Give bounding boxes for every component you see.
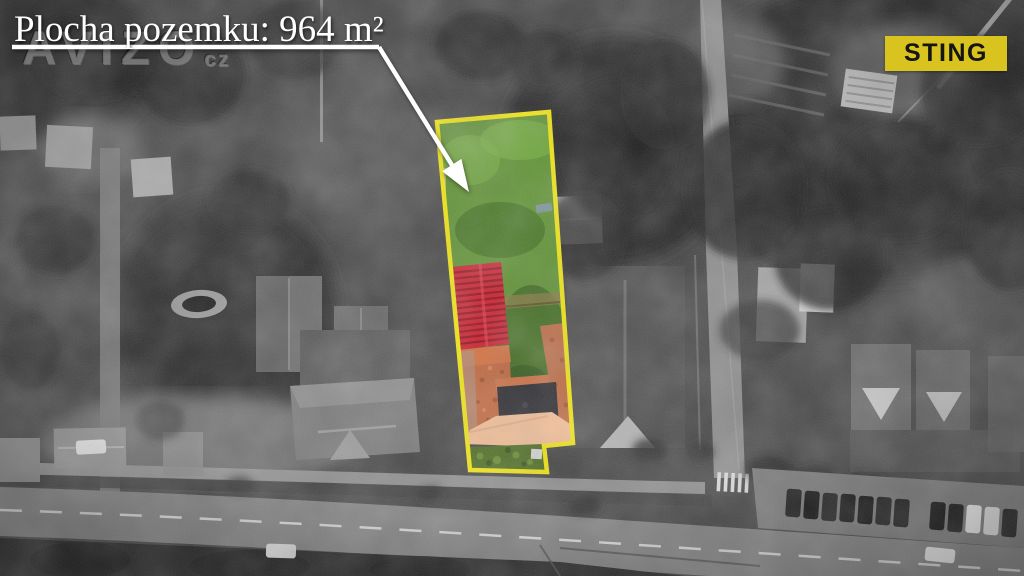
brand-badge-sting: STING: [885, 36, 1007, 71]
area-annotation: [12, 47, 455, 170]
annotation-svg: [0, 0, 1024, 576]
pointer-line: [379, 47, 455, 170]
area-label: Plocha pozemku: 964 m²: [14, 8, 384, 51]
aerial-photo: AVIZOcz Plocha pozemku: 964 m² STING: [0, 0, 1024, 576]
arrowhead-icon: [442, 159, 469, 192]
